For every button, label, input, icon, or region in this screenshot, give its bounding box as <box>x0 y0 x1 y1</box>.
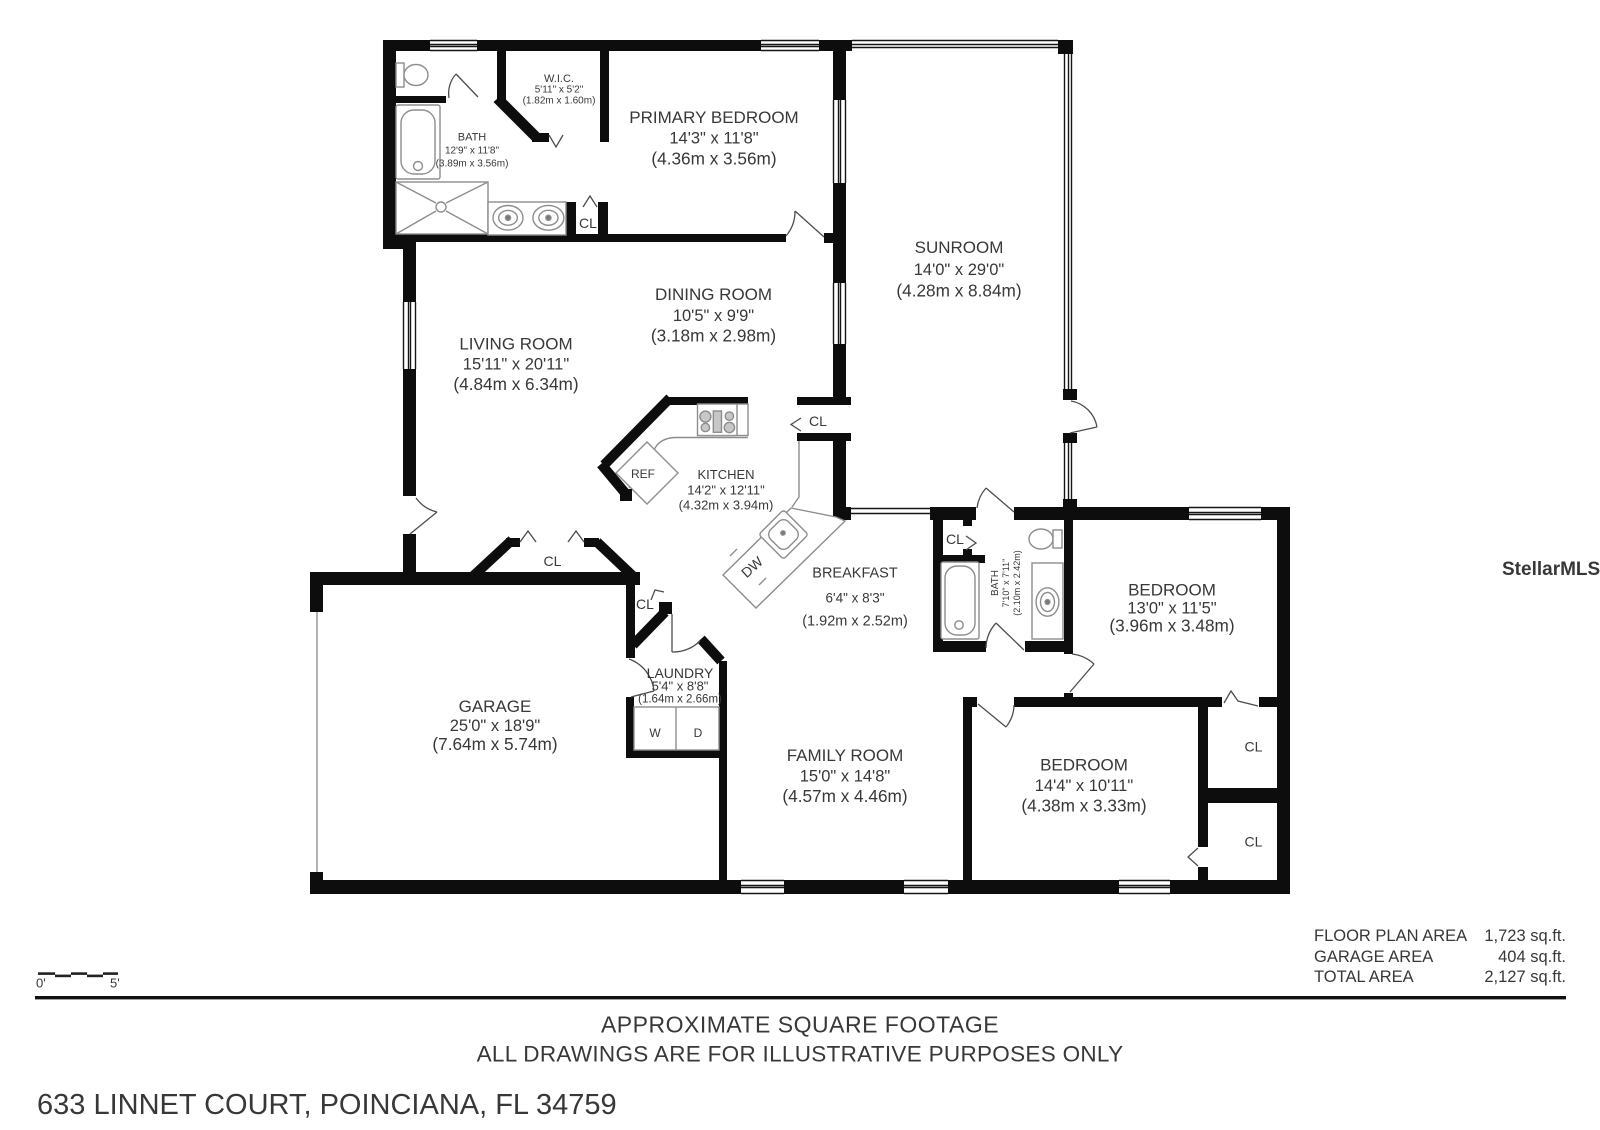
svg-text:(4.36m x 3.56m): (4.36m x 3.56m) <box>651 149 776 169</box>
svg-text:CL: CL <box>946 531 964 547</box>
svg-text:(4.57m x 4.46m): (4.57m x 4.46m) <box>782 786 907 806</box>
svg-text:BEDROOM: BEDROOM <box>1040 756 1128 775</box>
svg-text:15'11" x 20'11": 15'11" x 20'11" <box>463 356 570 374</box>
svg-text:(7.64m x 5.74m): (7.64m x 5.74m) <box>432 734 557 754</box>
svg-text:12'9" x 11'8": 12'9" x 11'8" <box>445 146 500 157</box>
svg-text:(1.82m x 1.60m): (1.82m x 1.60m) <box>523 96 596 107</box>
svg-text:10'5" x 9'9": 10'5" x 9'9" <box>673 307 754 325</box>
svg-text:14'2" x 12'11": 14'2" x 12'11" <box>687 483 765 498</box>
svg-text:2,127 sq.ft.: 2,127 sq.ft. <box>1484 968 1566 986</box>
svg-text:BATH: BATH <box>458 132 487 144</box>
svg-text:CL: CL <box>636 596 654 612</box>
svg-text:25'0" x 18'9": 25'0" x 18'9" <box>450 717 541 735</box>
svg-text:GARAGE AREA: GARAGE AREA <box>1314 948 1433 966</box>
svg-text:(4.28m x 8.84m): (4.28m x 8.84m) <box>896 281 1021 301</box>
svg-text:DINING ROOM: DINING ROOM <box>655 285 772 304</box>
svg-text:5': 5' <box>110 976 120 991</box>
svg-text:BREAKFAST: BREAKFAST <box>812 566 898 582</box>
svg-text:14'0" x 29'0": 14'0" x 29'0" <box>914 261 1005 279</box>
svg-text:BEDROOM: BEDROOM <box>1128 581 1216 600</box>
svg-text:FAMILY ROOM: FAMILY ROOM <box>787 746 904 765</box>
svg-text:APPROXIMATE SQUARE FOOTAGE: APPROXIMATE SQUARE FOOTAGE <box>601 1012 999 1038</box>
svg-text:(1.64m x 2.66m): (1.64m x 2.66m) <box>638 694 722 706</box>
svg-text:633 LINNET COURT, POINCIANA, F: 633 LINNET COURT, POINCIANA, FL 34759 <box>37 1089 617 1121</box>
svg-text:KITCHEN: KITCHEN <box>697 467 754 482</box>
svg-text:W.I.C.: W.I.C. <box>544 73 574 85</box>
svg-text:(2.10m x 2.42m): (2.10m x 2.42m) <box>1012 550 1022 616</box>
svg-text:CL: CL <box>544 553 562 569</box>
svg-text:CL: CL <box>579 215 597 231</box>
svg-text:5'4" x 8'8": 5'4" x 8'8" <box>652 679 709 694</box>
svg-text:404 sq.ft.: 404 sq.ft. <box>1498 948 1566 966</box>
svg-text:SUNROOM: SUNROOM <box>915 238 1004 257</box>
svg-text:1,723 sq.ft.: 1,723 sq.ft. <box>1484 927 1566 945</box>
svg-text:BATH: BATH <box>990 570 1001 596</box>
svg-text:FLOOR PLAN AREA: FLOOR PLAN AREA <box>1314 927 1467 945</box>
svg-text:PRIMARY BEDROOM: PRIMARY BEDROOM <box>629 108 798 127</box>
svg-text:5'11" x 5'2": 5'11" x 5'2" <box>535 85 584 96</box>
svg-text:(3.18m x 2.98m): (3.18m x 2.98m) <box>651 326 776 346</box>
svg-text:StellarMLS: StellarMLS <box>1502 559 1600 580</box>
svg-text:CL: CL <box>1245 834 1263 850</box>
svg-text:14'4" x 10'11": 14'4" x 10'11" <box>1035 777 1134 795</box>
svg-text:(3.96m x 3.48m): (3.96m x 3.48m) <box>1109 616 1234 636</box>
svg-text:CL: CL <box>809 413 827 429</box>
svg-text:GARAGE: GARAGE <box>459 697 532 716</box>
svg-text:ALL DRAWINGS ARE FOR ILLUSTRAT: ALL DRAWINGS ARE FOR ILLUSTRATIVE PURPOS… <box>477 1042 1124 1067</box>
svg-text:(4.38m x 3.33m): (4.38m x 3.33m) <box>1021 796 1146 816</box>
svg-text:CL: CL <box>1245 739 1263 755</box>
svg-text:(4.32m x 3.94m): (4.32m x 3.94m) <box>679 498 774 513</box>
svg-text:14'3" x 11'8": 14'3" x 11'8" <box>669 130 758 148</box>
svg-text:7'10" x 7'11": 7'10" x 7'11" <box>1001 559 1011 608</box>
svg-text:(4.84m x 6.34m): (4.84m x 6.34m) <box>453 374 578 394</box>
svg-text:(3.89m x 3.56m): (3.89m x 3.56m) <box>436 159 509 170</box>
svg-text:LIVING ROOM: LIVING ROOM <box>459 335 572 354</box>
svg-text:15'0" x 14'8": 15'0" x 14'8" <box>800 768 891 786</box>
svg-text:TOTAL AREA: TOTAL AREA <box>1314 968 1414 986</box>
svg-text:6'4" x 8'3": 6'4" x 8'3" <box>825 591 884 606</box>
svg-text:D: D <box>694 726 703 740</box>
svg-text:0': 0' <box>36 976 46 991</box>
svg-text:REF: REF <box>631 467 655 481</box>
svg-text:(1.92m x 2.52m): (1.92m x 2.52m) <box>802 614 908 630</box>
svg-text:W: W <box>649 726 661 740</box>
